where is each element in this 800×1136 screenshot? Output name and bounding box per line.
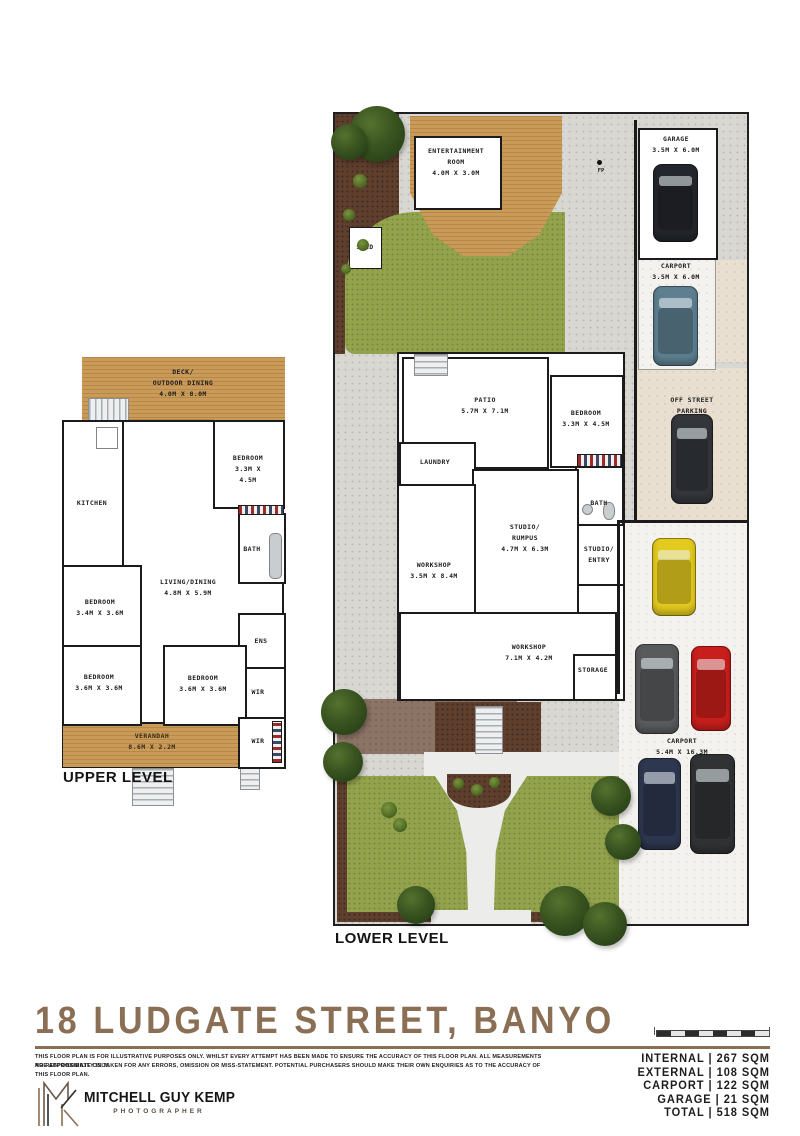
property-title: 18 LUDGATE STREET, BANYO xyxy=(35,1000,615,1043)
fp-label: FP xyxy=(598,168,605,174)
workshop2-label: WORKSHOP 7.1M X 4.2M xyxy=(505,642,552,664)
disclaimer-line-2: NO RESPONSIBILITY IS TAKEN FOR ANY ERROR… xyxy=(35,1062,555,1080)
lower-robe-strip xyxy=(577,454,622,467)
yard-stairs xyxy=(475,706,503,754)
bath-label: BATH xyxy=(243,544,260,555)
upper-level-label: UPPER LEVEL xyxy=(63,769,173,786)
rear-carport-top-wall xyxy=(617,520,747,523)
bed-shrub-2 xyxy=(471,784,483,796)
upper-robe-strip xyxy=(238,505,284,515)
bed-shrub-3 xyxy=(489,777,500,788)
carport-top-label: CARPORT 3.5M X 6.0M xyxy=(652,261,699,283)
fire-pit-icon xyxy=(597,160,602,165)
living-label: LIVING/DINING 4.8M X 5.9M xyxy=(160,577,216,599)
bathtub xyxy=(269,533,282,579)
storage-room xyxy=(573,654,617,701)
shrub-top-4 xyxy=(341,264,351,274)
bed-shrub-1 xyxy=(453,778,464,789)
stat-internal: INTERNAL | 267 SQM xyxy=(638,1053,770,1067)
rear-carport-label: CARPORT 5.4M X 16.3M xyxy=(656,736,708,758)
stat-carport: CARPORT | 122 SQM xyxy=(638,1080,770,1094)
mgk-logo-monogram xyxy=(36,1080,80,1128)
boundary-wall-right-column xyxy=(634,120,637,522)
garage-label: GARAGE 3.5M X 6.0M xyxy=(652,134,699,156)
wir2-label: WIR xyxy=(252,736,265,747)
car-black xyxy=(690,754,735,854)
title-rule xyxy=(35,1046,770,1049)
logo-name: MITCHELL GUY KEMP xyxy=(84,1090,235,1106)
scale-tick-right xyxy=(769,1027,770,1035)
lower-bath-room xyxy=(575,466,624,528)
verandah-label: VERANDAH 8.6M X 2.2M xyxy=(128,731,175,753)
floorplan-page: DECK/ OUTDOOR DINING 4.0M X 8.0M KITCHEN… xyxy=(0,0,800,1136)
stat-garage: GARAGE | 21 SQM xyxy=(638,1094,770,1108)
lower-bath-label: BATH xyxy=(590,498,607,509)
lawn-edge-left xyxy=(337,776,347,922)
car-garage xyxy=(653,164,698,242)
car-yellow xyxy=(652,538,696,616)
stat-total: TOTAL | 518 SQM xyxy=(638,1107,770,1121)
path-band xyxy=(424,752,628,776)
driveway-crossing xyxy=(715,260,747,362)
studio-rumpus-label: STUDIO/ RUMPUS 4.7M X 6.3M xyxy=(501,522,548,555)
entertainment-label: ENTERTAINMENT ROOM 4.0M X 3.0M xyxy=(428,146,484,179)
tree-left-1 xyxy=(321,689,367,735)
shrub-top-1 xyxy=(353,174,367,188)
tree-bottom-1 xyxy=(397,886,435,924)
area-stats: INTERNAL | 267 SQM EXTERNAL | 108 SQM CA… xyxy=(632,1053,770,1121)
lower-level-label: LOWER LEVEL xyxy=(335,930,449,947)
studio-entry-label: STUDIO/ ENTRY xyxy=(584,544,614,566)
bedroom-bm-label: BEDROOM 3.6M X 3.6M xyxy=(179,673,226,695)
deck-label: DECK/ OUTDOOR DINING 4.0M X 8.0M xyxy=(153,367,213,400)
laundry-label: LAUNDRY xyxy=(420,457,450,468)
storage-label: STORAGE xyxy=(578,665,608,676)
car-navy xyxy=(638,758,681,850)
rear-carport-left-wall xyxy=(617,522,620,694)
ens-label: ENS xyxy=(255,636,268,647)
upper-level-plan: DECK/ OUTDOOR DINING 4.0M X 8.0M KITCHEN… xyxy=(60,355,290,825)
car-carport-top xyxy=(653,286,698,366)
tree-top-2 xyxy=(331,124,367,160)
stat-external: EXTERNAL | 108 SQM xyxy=(638,1067,770,1081)
wir1-label: WIR xyxy=(252,687,265,698)
kitchen-label: KITCHEN xyxy=(77,498,107,509)
lawn-shrub-2 xyxy=(393,818,407,832)
car-off-street xyxy=(671,414,713,504)
tree-bottom-3 xyxy=(583,902,627,946)
bedroom-ml-label: BEDROOM 3.4M X 3.6M xyxy=(76,597,123,619)
garden-mulch-left xyxy=(335,279,345,354)
shrub-top-3 xyxy=(357,239,369,251)
scale-bar xyxy=(656,1030,770,1037)
lawn-shrub-1 xyxy=(381,802,397,818)
street-footpath xyxy=(431,910,531,924)
car-grey xyxy=(635,644,679,734)
logo-subtitle: PHOTOGRAPHER xyxy=(84,1108,234,1115)
scale-tick-left xyxy=(654,1027,655,1035)
car-red xyxy=(691,646,731,731)
entry-steps xyxy=(414,354,448,376)
workshop1-room xyxy=(397,484,476,618)
upper-wir2-closet xyxy=(272,721,282,763)
shrub-top-2 xyxy=(343,209,355,221)
verandah-side-steps xyxy=(240,766,260,790)
lower-bedroom-label: BEDROOM 3.3M X 4.5M xyxy=(562,408,609,430)
bedroom-bl-label: BEDROOM 3.6M X 3.6M xyxy=(75,672,122,694)
off-street-parking-label: OFF STREET PARKING xyxy=(665,395,720,417)
tree-right-1 xyxy=(591,776,631,816)
bedroom-tr-label: BEDROOM 3.3M X 4.5M xyxy=(227,453,269,486)
patio-label: PATIO 5.7M X 7.1M xyxy=(461,395,508,417)
lower-level-plan: ENTERTAINMENT ROOM 4.0M X 3.0M SHED FP G… xyxy=(333,112,749,926)
tree-left-2 xyxy=(323,742,363,782)
stove xyxy=(96,427,118,449)
tree-right-2 xyxy=(605,824,641,860)
workshop1-label: WORKSHOP 3.5M X 8.4M xyxy=(410,560,457,582)
